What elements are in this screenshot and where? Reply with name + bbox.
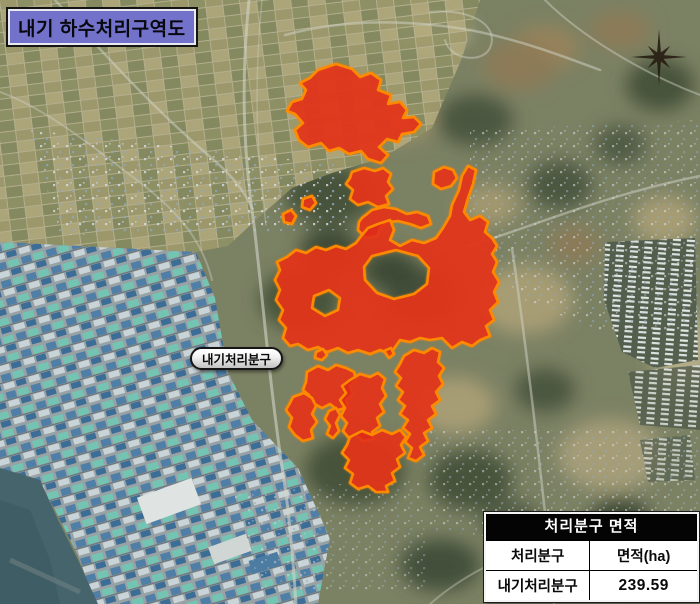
area-table: 처리분구 면적 처리분구 면적(ha) 내기처리분구 239.59 [484,512,699,602]
area-table-col-district: 처리분구 [486,540,589,570]
area-table-col-area: 면적(ha) [589,540,697,570]
area-table-row-district: 내기처리분구 [486,570,589,600]
area-table-body: 처리분구 면적(ha) 내기처리분구 239.59 [486,540,697,600]
area-table-row-area: 239.59 [589,570,697,600]
district-zone [315,349,327,360]
district-zone [346,168,393,207]
map-title: 내기 하수처리구역도 [8,9,196,45]
district-zone [283,210,296,224]
district-label: 내기처리분구 [190,347,283,370]
area-table-title: 처리분구 면적 [486,514,697,540]
map-canvas: 내기 하수처리구역도 내기처리분구 처리분구 면적 처리분구 면적(ha) 내기… [0,0,700,604]
